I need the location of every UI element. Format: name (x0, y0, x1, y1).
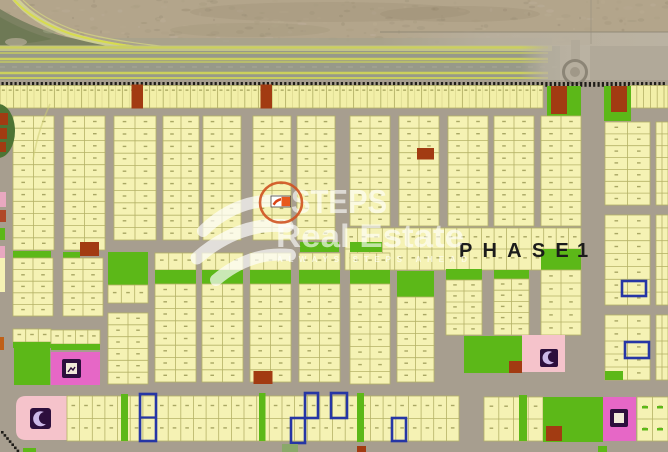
svg-text:PHASE: PHASE (459, 240, 579, 262)
svg-text:STEPS: STEPS (291, 183, 387, 220)
svg-text:Real Estate: Real Estate (276, 218, 464, 254)
svg-text:1: 1 (577, 240, 588, 262)
